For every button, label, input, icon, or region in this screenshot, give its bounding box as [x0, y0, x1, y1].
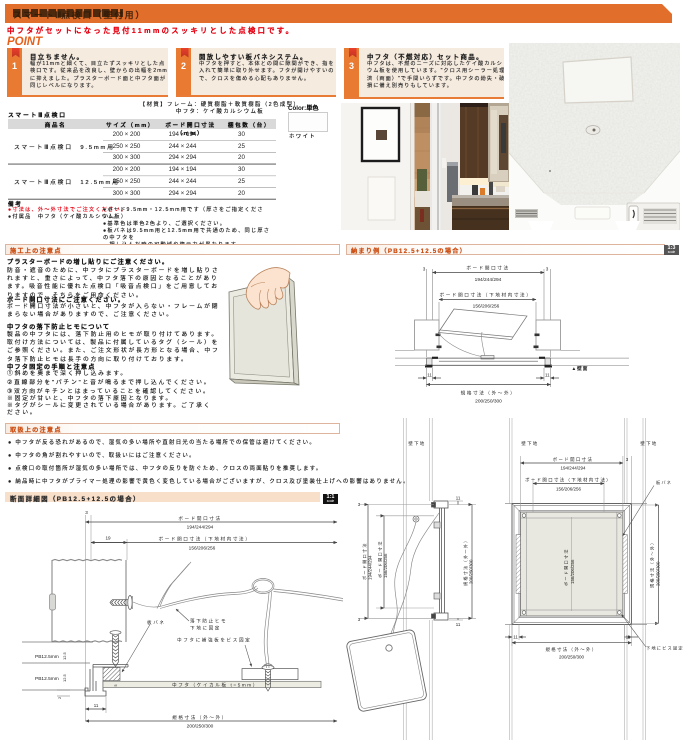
svg-text:11: 11 [626, 635, 631, 640]
svg-text:PB12.5mm: PB12.5mm [35, 676, 59, 682]
svg-text:下地に固定: 下地に固定 [190, 625, 221, 632]
svg-text:壁下地: 壁下地 [521, 440, 538, 447]
svg-text:194/244/294: 194/244/294 [368, 555, 373, 580]
svg-text:ボード開口寸法（下地材内寸法）: ボード開口寸法（下地材内寸法） [440, 292, 533, 299]
svg-text:11: 11 [456, 622, 461, 627]
svg-text:11: 11 [545, 373, 550, 378]
svg-text:中フタ（ケイカル板 t=5mm）: 中フタ（ケイカル板 t=5mm） [172, 682, 259, 689]
svg-text:ボード開口寸法: ボード開口寸法 [178, 515, 221, 522]
svg-text:板バネ: 板バネ [656, 479, 672, 486]
svg-text:194/244/294: 194/244/294 [560, 466, 586, 471]
svg-text:規格寸法（外～外）: 規格寸法（外～外） [172, 714, 228, 721]
svg-text:156/206/256: 156/206/256 [189, 546, 216, 552]
svg-text:200/250/300: 200/250/300 [559, 655, 585, 660]
svg-text:規格寸法（外～外）: 規格寸法（外～外） [545, 646, 597, 653]
svg-text:194/244/294: 194/244/294 [475, 277, 502, 283]
svg-text:11: 11 [456, 496, 461, 501]
svg-text:3: 3 [85, 510, 88, 515]
svg-text:3: 3 [423, 267, 426, 272]
svg-text:2: 2 [57, 696, 62, 699]
svg-text:156/206/256: 156/206/256 [570, 559, 575, 584]
svg-text:ボード開口寸法（下地材内寸法）: ボード開口寸法（下地材内寸法） [159, 536, 252, 543]
svg-text:板バネ: 板バネ [147, 619, 166, 626]
svg-text:5: 5 [114, 685, 118, 687]
svg-text:ボード開口寸法: ボード開口寸法 [553, 456, 594, 463]
svg-text:156/206/256: 156/206/256 [473, 304, 500, 310]
svg-text:規格寸法（外～外）: 規格寸法（外～外） [461, 390, 517, 397]
svg-text:19: 19 [105, 536, 111, 541]
svg-text:12.5: 12.5 [62, 651, 67, 660]
svg-text:200/250/300: 200/250/300 [469, 559, 474, 584]
svg-text:12.5: 12.5 [62, 673, 67, 682]
svg-text:ボード開口寸法: ボード開口寸法 [466, 265, 509, 272]
svg-text:中フタに補強板をビス固定: 中フタに補強板をビス固定 [177, 637, 251, 644]
svg-text:200/250/300: 200/250/300 [656, 561, 661, 586]
svg-text:PB12.5mm: PB12.5mm [35, 654, 59, 660]
svg-text:壁下地: 壁下地 [640, 440, 657, 447]
svg-text:落下防止ヒモ: 落下防止ヒモ [190, 618, 227, 625]
svg-text:156/206/256: 156/206/256 [556, 487, 582, 492]
svg-text:11: 11 [427, 373, 432, 378]
svg-text:規格寸法（外～外）: 規格寸法（外～外） [649, 540, 656, 589]
svg-text:11: 11 [513, 635, 518, 640]
svg-text:3: 3 [546, 267, 549, 272]
svg-text:壁下地: 壁下地 [408, 440, 425, 447]
svg-text:3: 3 [626, 457, 629, 462]
svg-text:200/250/300: 200/250/300 [475, 399, 502, 405]
svg-text:200/250/300: 200/250/300 [187, 724, 214, 730]
svg-text:ボード開口寸法: ボード開口寸法 [563, 548, 570, 586]
svg-text:下地にビス固定: 下地にビス固定 [646, 645, 684, 652]
svg-text:11: 11 [94, 703, 99, 708]
svg-text:3: 3 [358, 617, 361, 622]
svg-text:194/244/294: 194/244/294 [187, 525, 214, 531]
svg-text:▲壁面: ▲壁面 [572, 365, 589, 372]
svg-text:156/206/256: 156/206/256 [383, 553, 388, 578]
svg-text:ボード開口寸法（下地材内寸法）: ボード開口寸法（下地材内寸法） [525, 477, 612, 484]
